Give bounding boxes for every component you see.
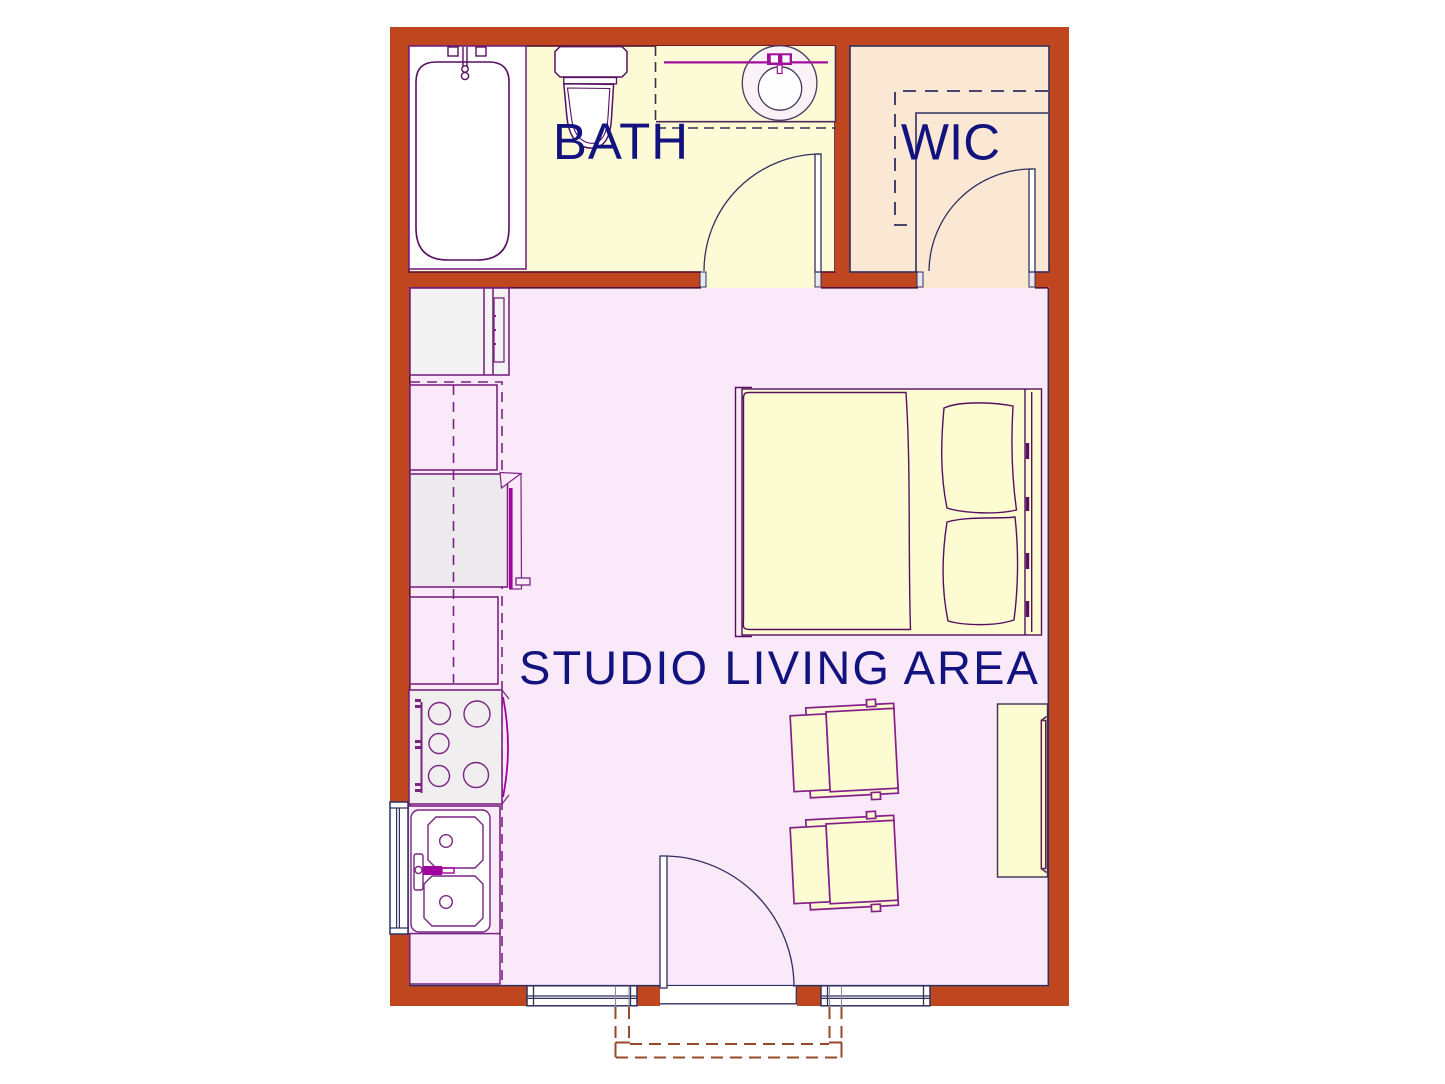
svg-text:STUDIO LIVING AREA: STUDIO LIVING AREA	[519, 641, 1040, 694]
svg-text:BATH: BATH	[553, 113, 689, 170]
svg-text:WIC: WIC	[901, 114, 1000, 171]
